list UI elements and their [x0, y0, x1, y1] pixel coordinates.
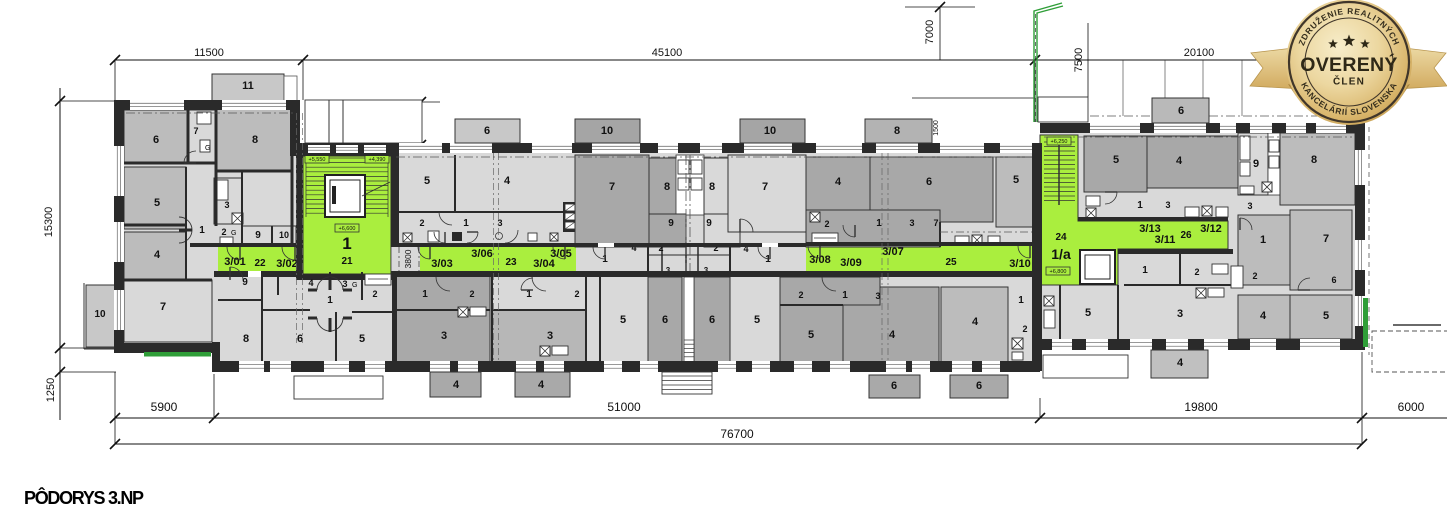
svg-text:2: 2 [798, 290, 803, 300]
svg-text:4: 4 [835, 176, 842, 188]
svg-text:9: 9 [668, 218, 674, 229]
svg-text:3/12: 3/12 [1200, 223, 1221, 235]
svg-text:3: 3 [875, 291, 880, 301]
svg-text:5: 5 [359, 333, 365, 345]
svg-text:6000: 6000 [1398, 400, 1425, 414]
svg-text:10: 10 [94, 309, 106, 320]
svg-text:7: 7 [193, 126, 198, 136]
svg-text:20100: 20100 [1184, 47, 1215, 59]
svg-text:4: 4 [154, 249, 161, 261]
svg-text:7500: 7500 [1073, 48, 1085, 72]
svg-text:2: 2 [419, 218, 424, 228]
svg-text:3/09: 3/09 [840, 257, 861, 269]
svg-text:3: 3 [909, 218, 914, 228]
svg-text:5: 5 [1113, 154, 1119, 166]
svg-text:10: 10 [764, 125, 776, 137]
svg-text:6: 6 [1178, 105, 1184, 117]
svg-text:10: 10 [601, 125, 613, 137]
svg-text:7000: 7000 [924, 20, 936, 44]
svg-text:6: 6 [153, 134, 159, 146]
svg-text:1250: 1250 [45, 378, 57, 402]
svg-text:2: 2 [221, 227, 226, 237]
svg-text:6: 6 [662, 314, 668, 326]
svg-text:G: G [352, 282, 357, 289]
svg-text:5: 5 [620, 314, 626, 326]
svg-text:3: 3 [441, 330, 447, 342]
svg-text:+5,550: +5,550 [309, 157, 326, 163]
svg-text:7: 7 [160, 301, 166, 313]
svg-text:6: 6 [891, 380, 897, 392]
svg-text:4: 4 [1177, 357, 1184, 369]
svg-text:1/a: 1/a [1051, 246, 1071, 262]
svg-text:3: 3 [1177, 308, 1183, 320]
svg-text:10: 10 [279, 230, 289, 240]
svg-text:2: 2 [372, 289, 377, 299]
svg-text:7: 7 [1323, 233, 1329, 245]
svg-text:8: 8 [709, 181, 715, 193]
svg-text:9: 9 [706, 218, 712, 229]
svg-text:3: 3 [224, 200, 229, 210]
svg-text:2: 2 [824, 219, 829, 229]
svg-text:26: 26 [1180, 230, 1192, 241]
svg-text:OVERENÝ: OVERENÝ [1300, 52, 1397, 76]
svg-text:1: 1 [1260, 234, 1266, 246]
svg-text:7: 7 [609, 181, 615, 193]
svg-text:G: G [231, 230, 236, 237]
svg-text:51000: 51000 [607, 400, 641, 414]
svg-text:1: 1 [463, 218, 469, 229]
svg-text:5: 5 [808, 329, 814, 341]
svg-text:3: 3 [1247, 201, 1252, 211]
svg-text:76700: 76700 [720, 427, 754, 441]
svg-text:5: 5 [1013, 174, 1019, 186]
svg-text:2: 2 [1252, 271, 1257, 281]
svg-text:6: 6 [484, 125, 490, 137]
svg-text:4: 4 [1176, 155, 1183, 167]
svg-text:1: 1 [876, 218, 882, 229]
svg-text:5: 5 [754, 314, 760, 326]
svg-text:G: G [205, 145, 210, 152]
svg-text:9: 9 [1253, 158, 1259, 170]
svg-text:11500: 11500 [194, 47, 224, 59]
svg-text:6: 6 [1331, 275, 1336, 285]
svg-text:1: 1 [422, 289, 428, 300]
svg-text:45100: 45100 [652, 47, 683, 59]
svg-text:3: 3 [1165, 200, 1170, 210]
svg-text:7: 7 [933, 218, 938, 228]
svg-text:7: 7 [762, 181, 768, 193]
svg-text:8: 8 [1311, 154, 1317, 166]
svg-text:4: 4 [308, 278, 313, 288]
svg-text:25: 25 [945, 257, 957, 268]
svg-text:6: 6 [709, 314, 715, 326]
svg-text:2: 2 [469, 289, 474, 299]
svg-text:1500: 1500 [933, 120, 940, 136]
svg-text:4: 4 [504, 175, 511, 187]
svg-text:6: 6 [976, 380, 982, 392]
svg-text:5900: 5900 [151, 400, 178, 414]
svg-text:3/11: 3/11 [1155, 234, 1176, 246]
svg-text:1: 1 [1142, 265, 1148, 276]
svg-text:1: 1 [199, 225, 205, 236]
svg-text:4: 4 [538, 379, 545, 391]
svg-text:+6,600: +6,600 [339, 226, 356, 232]
svg-text:4: 4 [972, 316, 979, 328]
svg-text:4: 4 [889, 329, 896, 341]
svg-text:+6,800: +6,800 [1050, 269, 1067, 275]
svg-text:8: 8 [252, 134, 258, 146]
svg-text:1: 1 [327, 295, 333, 306]
svg-text:1: 1 [342, 234, 351, 253]
svg-text:4: 4 [1260, 310, 1267, 322]
svg-text:24: 24 [1055, 232, 1067, 243]
svg-text:6: 6 [297, 333, 303, 345]
svg-text:19800: 19800 [1184, 400, 1218, 414]
svg-text:3: 3 [342, 279, 347, 289]
svg-text:3/10: 3/10 [1009, 258, 1030, 270]
svg-text:2: 2 [1022, 324, 1027, 334]
svg-text:6: 6 [926, 176, 932, 188]
svg-text:ČLEN: ČLEN [1333, 75, 1365, 88]
svg-text:1: 1 [1137, 200, 1143, 211]
svg-text:3800: 3800 [403, 249, 413, 268]
svg-text:3: 3 [547, 330, 553, 342]
svg-text:23: 23 [505, 257, 517, 268]
svg-text:1: 1 [1018, 295, 1024, 306]
svg-text:3/06: 3/06 [471, 248, 492, 260]
svg-text:9: 9 [255, 230, 261, 241]
svg-text:2: 2 [574, 289, 579, 299]
svg-text:22: 22 [254, 258, 266, 269]
svg-text:+4,390: +4,390 [369, 157, 386, 163]
svg-text:3/07: 3/07 [882, 246, 903, 258]
svg-text:11: 11 [242, 80, 254, 92]
svg-text:3/04: 3/04 [533, 258, 555, 270]
svg-text:2: 2 [1194, 267, 1199, 277]
svg-text:5: 5 [424, 175, 430, 187]
svg-text:8: 8 [243, 333, 249, 345]
svg-text:PÔDORYS 3.NP: PÔDORYS 3.NP [24, 487, 144, 508]
svg-text:21: 21 [341, 256, 353, 267]
svg-text:8: 8 [894, 125, 900, 137]
svg-text:15300: 15300 [43, 207, 55, 238]
svg-text:3/03: 3/03 [431, 258, 452, 270]
svg-text:+6,250: +6,250 [1051, 139, 1068, 145]
svg-text:5: 5 [154, 197, 160, 209]
svg-text:1: 1 [842, 290, 848, 301]
svg-text:4: 4 [453, 379, 460, 391]
svg-text:5: 5 [1085, 307, 1091, 319]
svg-text:3/01: 3/01 [224, 256, 245, 268]
svg-text:8: 8 [664, 181, 670, 193]
svg-text:5: 5 [1323, 310, 1329, 322]
